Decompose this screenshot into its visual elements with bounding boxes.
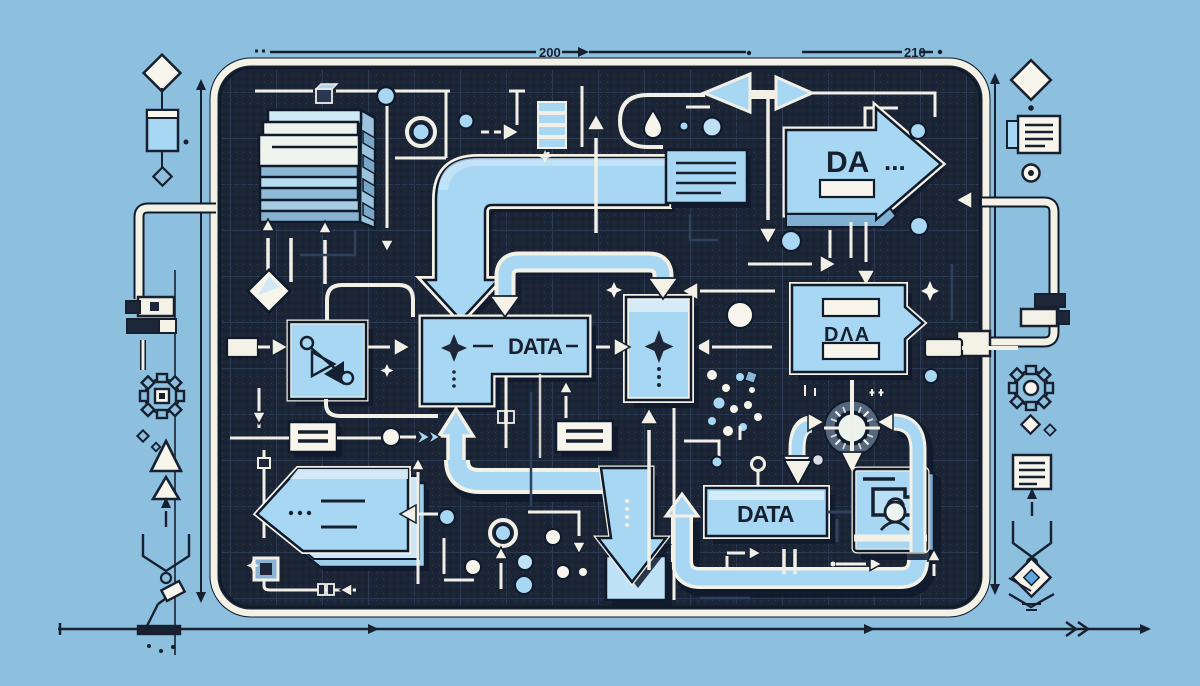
svg-text:DA: DA bbox=[826, 146, 869, 179]
svg-text:DATA: DATA bbox=[737, 501, 794, 527]
svg-text:DATA: DATA bbox=[508, 334, 563, 359]
svg-text:200: 200 bbox=[539, 45, 561, 60]
svg-text:...: ... bbox=[884, 146, 906, 176]
svg-text:210: 210 bbox=[904, 45, 926, 60]
